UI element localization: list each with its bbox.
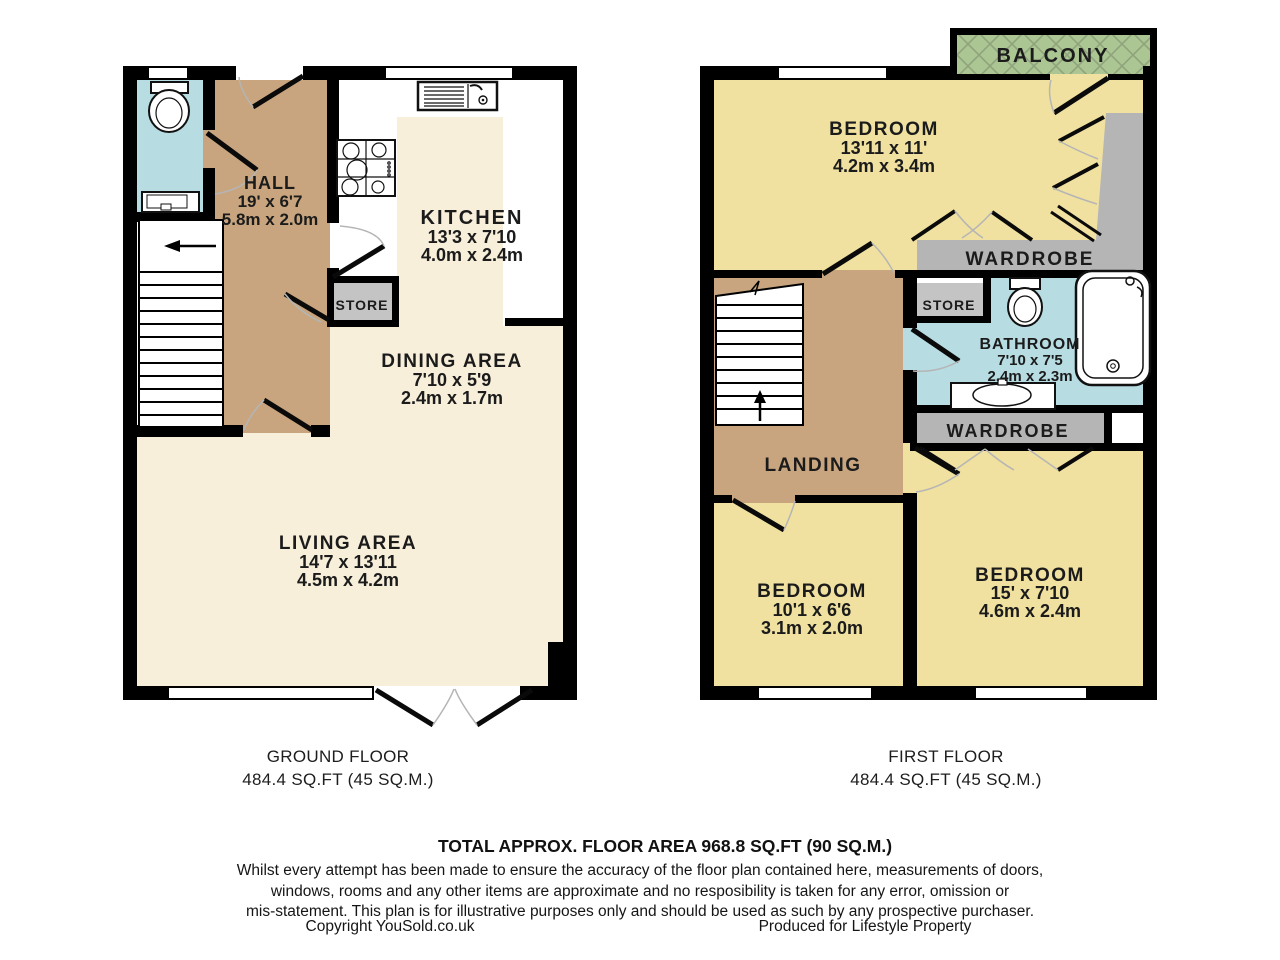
first-floor-plan: BALCONY BEDROOM 13'11 x 11' 4.2m x 3.4m … — [700, 28, 1157, 700]
balcony-door-gap-floor — [1050, 74, 1108, 80]
bathroom-label: BATHROOM — [979, 336, 1080, 353]
ground-floor-caption: GROUND FLOOR 484.4 SQ.FT (45 SQ.M.) — [123, 745, 553, 791]
kitchen-label: KITCHEN — [421, 207, 524, 229]
disclaimer-line-3: mis-statement. This plan is for illustra… — [0, 902, 1280, 923]
ground-floor-caption-title: GROUND FLOOR — [123, 745, 553, 768]
window — [148, 67, 188, 79]
bath-fixture — [1076, 271, 1150, 385]
front-door-opening — [236, 66, 303, 80]
produced-for-text: Produced for Lifestyle Property — [705, 918, 1025, 936]
landing-label: LANDING — [764, 455, 861, 476]
staircase-ground — [139, 220, 223, 427]
bedroom2-dims-ft: 10'1 x 6'6 — [773, 600, 852, 620]
bedroom2-door-gap-floor — [732, 495, 795, 503]
bedroom1-label: BEDROOM — [829, 119, 939, 140]
bathroom-dims-ft: 7'10 x 7'5 — [997, 352, 1063, 369]
wardrobe1-label: WARDROBE — [966, 249, 1095, 270]
floor-plan-canvas: HALL 19' x 6'7 5.8m x 2.0m KITCHEN 13'3 … — [0, 0, 1280, 960]
kitchen-dims-ft: 13'3 x 7'10 — [428, 227, 517, 247]
ground-floor-plan: HALL 19' x 6'7 5.8m x 2.0m KITCHEN 13'3 … — [123, 66, 577, 725]
bedroom2-label: BEDROOM — [757, 581, 867, 602]
staircase-first — [716, 281, 803, 425]
living-label: LIVING AREA — [279, 533, 417, 554]
store-ground-label: STORE — [336, 297, 389, 313]
first-floor-caption: FIRST FLOOR 484.4 SQ.FT (45 SQ.M.) — [728, 745, 1164, 791]
disclaimer-line-2: windows, rooms and any other items are a… — [0, 882, 1280, 903]
wc-toilet-fixture — [149, 82, 189, 132]
bathroom-door-gap-floor — [903, 328, 917, 370]
window — [778, 67, 887, 79]
bathroom-toilet-fixture — [1008, 278, 1042, 326]
kitchen-dims-m: 4.0m x 2.4m — [421, 245, 523, 265]
bedroom1-dims-ft: 13'11 x 11' — [841, 138, 928, 158]
copyright-text: Copyright YouSold.co.uk — [230, 918, 550, 936]
store-first-label: STORE — [923, 297, 976, 313]
bedroom1-dims-m: 4.2m x 3.4m — [833, 156, 935, 176]
living-dims-ft: 14'7 x 13'11 — [299, 552, 397, 572]
total-floor-area: TOTAL APPROX. FLOOR AREA 968.8 SQ.FT (90… — [0, 836, 1280, 857]
bedroom3-dims-m: 4.6m x 2.4m — [979, 601, 1081, 621]
wc-sink-fixture — [142, 192, 199, 212]
floorplan-page: HALL 19' x 6'7 5.8m x 2.0m KITCHEN 13'3 … — [0, 0, 1280, 960]
living-dims-m: 4.5m x 4.2m — [297, 570, 399, 590]
dining-dims-m: 2.4m x 1.7m — [401, 388, 503, 408]
bedroom3-dims-ft: 15' x 7'10 — [991, 583, 1070, 603]
dining-dims-ft: 7'10 x 5'9 — [413, 370, 492, 390]
first-floor-caption-area: 484.4 SQ.FT (45 SQ.M.) — [728, 768, 1164, 791]
window — [168, 687, 373, 699]
hall-dims-m: 5.8m x 2.0m — [222, 210, 318, 229]
ground-floor-caption-area: 484.4 SQ.FT (45 SQ.M.) — [123, 768, 553, 791]
hall-label: HALL — [244, 173, 296, 193]
disclaimer-text: Whilst every attempt has been made to en… — [0, 861, 1280, 923]
window — [758, 687, 872, 699]
patio-door-opening — [373, 686, 520, 700]
stove-fixture — [337, 140, 395, 196]
balcony-label: BALCONY — [997, 45, 1110, 67]
kitchen-sink-fixture — [418, 82, 497, 110]
bedroom2-dims-m: 3.1m x 2.0m — [761, 618, 863, 638]
bathroom-dims-m: 2.4m x 2.3m — [987, 368, 1072, 385]
bedroom1-door-gap-floor — [822, 270, 895, 278]
wardrobe2-label: WARDROBE — [947, 421, 1070, 441]
first-floor-caption-title: FIRST FLOOR — [728, 745, 1164, 768]
hall-dims-ft: 19' x 6'7 — [238, 192, 303, 211]
airing-cupboard — [1112, 413, 1143, 445]
dining-label: DINING AREA — [381, 351, 522, 372]
window — [385, 67, 513, 79]
window — [975, 687, 1087, 699]
disclaimer-line-1: Whilst every attempt has been made to en… — [0, 861, 1280, 882]
